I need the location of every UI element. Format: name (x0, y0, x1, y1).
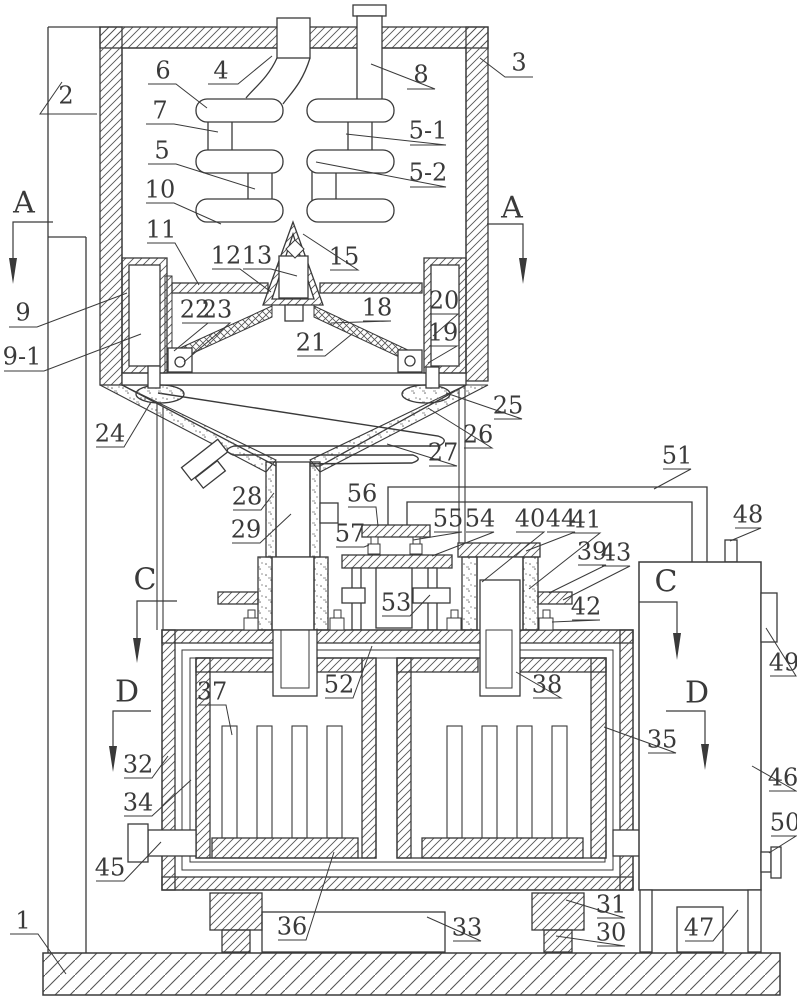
part-label-6: 6 (155, 56, 170, 84)
discharge-spout (182, 439, 228, 488)
part-label-26: 26 (463, 420, 494, 448)
part-label-24: 24 (95, 419, 126, 447)
discharge-pipe (266, 462, 338, 557)
part-label-52: 52 (324, 670, 355, 698)
port-49 (761, 593, 777, 642)
section-line-D (113, 711, 151, 746)
part-label-10: 10 (145, 175, 176, 203)
supports (43, 893, 780, 995)
patent-diagram-page: 123455-15-267899-11011121315181920212223… (0, 0, 797, 1000)
part-label-37: 37 (197, 677, 228, 705)
part-label-9: 9 (15, 298, 30, 326)
part-label-57: 57 (335, 519, 366, 547)
leader-line-50 (769, 836, 796, 853)
shelf-right (320, 283, 422, 293)
vent-pipe-48 (725, 540, 737, 562)
leader-line-51 (654, 469, 691, 489)
inlet-pipe-8 (357, 16, 382, 102)
section-letter-A: A (500, 191, 523, 226)
leader-line-44 (526, 532, 575, 551)
base-plate (43, 953, 780, 995)
part-label-27: 27 (428, 438, 459, 466)
part-label-12: 12 (211, 241, 242, 269)
part-label-44: 44 (546, 504, 577, 532)
part-label-51: 51 (662, 441, 693, 469)
stand-post (48, 27, 100, 953)
part-label-5-1: 5-1 (409, 116, 448, 144)
section-letter-D: D (685, 676, 709, 711)
part-label-47: 47 (684, 913, 715, 941)
chamber-floor (122, 373, 466, 385)
shelf-left (172, 283, 268, 293)
part-label-40: 40 (515, 504, 546, 532)
part-label-55: 55 (433, 504, 464, 532)
section-line-A (13, 222, 53, 258)
part-label-49: 49 (769, 648, 797, 676)
part-label-21: 21 (296, 328, 327, 356)
leader-line-48 (730, 528, 761, 541)
part-label-9-1: 9-1 (3, 342, 42, 370)
part-label-19: 19 (428, 318, 459, 346)
leader-line-39 (549, 565, 606, 593)
part-label-11: 11 (146, 215, 177, 243)
part-label-3: 3 (511, 48, 526, 76)
part-label-33: 33 (452, 913, 483, 941)
part-label-5-2: 5-2 (409, 158, 448, 186)
aux-tank (639, 562, 781, 952)
part-label-2: 2 (58, 81, 73, 109)
inlet-flange-8 (353, 5, 386, 16)
part-label-18: 18 (362, 293, 393, 321)
part-label-34: 34 (123, 788, 154, 816)
part-label-25: 25 (493, 391, 524, 419)
part-label-28: 28 (232, 482, 263, 510)
part-label-45: 45 (95, 853, 126, 881)
part-label-42: 42 (571, 592, 602, 620)
part-label-20: 20 (429, 286, 460, 314)
part-label-15: 15 (329, 242, 360, 270)
part-label-4: 4 (213, 56, 228, 84)
section-arrow-A (9, 258, 17, 284)
part-label-56: 56 (347, 479, 378, 507)
left-damper (122, 258, 172, 388)
part-label-35: 35 (647, 725, 678, 753)
section-arrow-A (519, 258, 527, 284)
port-50 (761, 852, 771, 872)
section-arrow-C (133, 638, 141, 663)
part-label-43: 43 (601, 538, 632, 566)
part-label-8: 8 (413, 60, 428, 88)
section-letter-D: D (115, 675, 139, 710)
part-label-48: 48 (733, 500, 764, 528)
part-label-46: 46 (768, 763, 797, 791)
inlet-pipe-45 (128, 824, 196, 862)
part-label-13: 13 (242, 241, 273, 269)
section-arrow-D (109, 746, 117, 772)
part-label-5: 5 (154, 136, 169, 164)
part-label-36: 36 (277, 912, 308, 940)
part-label-30: 30 (596, 918, 627, 946)
part-label-53: 53 (381, 588, 412, 616)
inlet-pipe-4 (277, 18, 310, 58)
section-line-A (487, 224, 523, 258)
section-letter-A: A (12, 186, 35, 221)
part-label-31: 31 (596, 890, 627, 918)
part-label-50: 50 (770, 808, 797, 836)
section-letter-C: C (655, 565, 678, 600)
part-label-38: 38 (532, 670, 563, 698)
part-label-23: 23 (202, 295, 233, 323)
part-label-1: 1 (15, 906, 30, 934)
part-label-29: 29 (231, 515, 262, 543)
part-label-32: 32 (123, 750, 154, 778)
part-label-54: 54 (465, 504, 496, 532)
mechanical-diagram: 123455-15-267899-11011121315181920212223… (0, 0, 797, 1000)
section-letter-C: C (134, 563, 157, 598)
part-label-7: 7 (152, 96, 167, 124)
